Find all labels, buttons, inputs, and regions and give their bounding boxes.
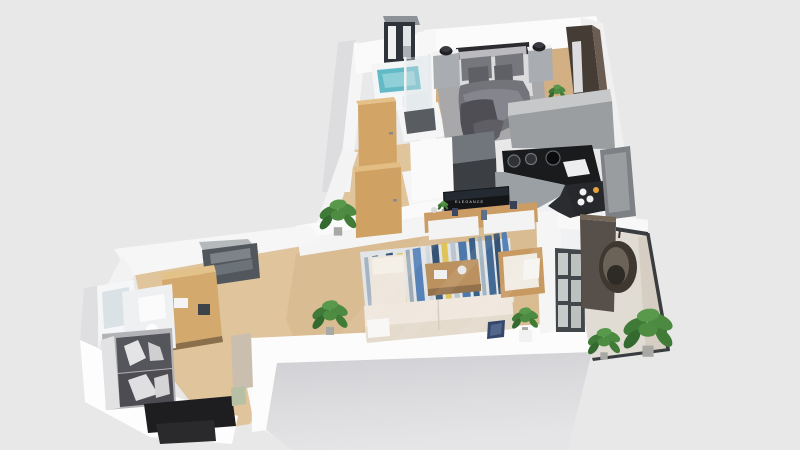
svg-text:ELEGANCE: ELEGANCE bbox=[455, 200, 484, 204]
